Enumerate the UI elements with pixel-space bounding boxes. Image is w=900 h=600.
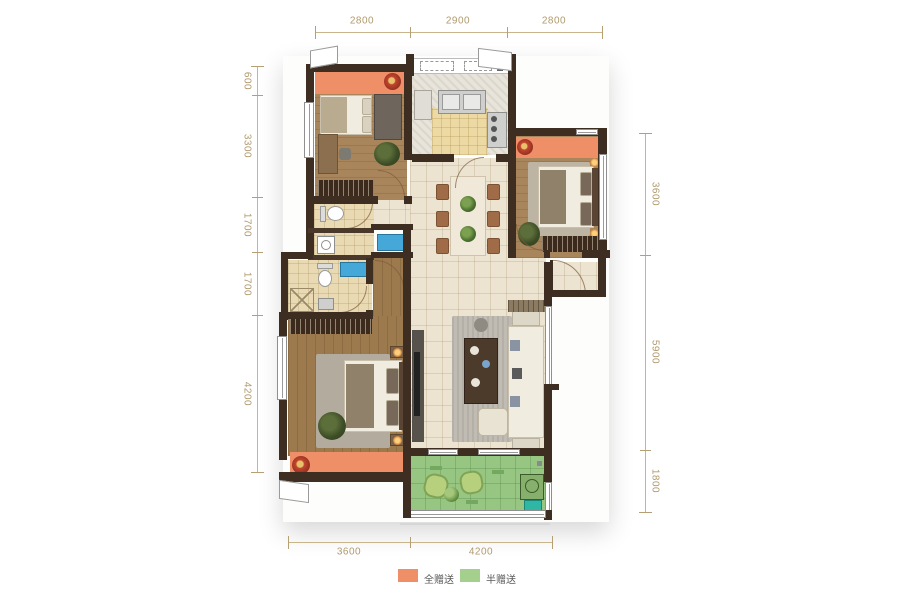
dim-tick — [288, 536, 289, 549]
burner — [491, 136, 497, 142]
armchair — [478, 408, 508, 436]
legend-swatch-half-gift — [460, 569, 480, 582]
dim-tick — [251, 472, 264, 473]
sofa-pillow — [510, 396, 520, 407]
sofa-pillow — [510, 340, 520, 351]
dim-label: 3300 — [242, 134, 253, 158]
wall — [404, 196, 412, 204]
wall — [403, 510, 411, 518]
wall — [403, 448, 411, 516]
vanity-sink — [318, 298, 334, 310]
window — [576, 129, 598, 135]
dim-tick — [410, 537, 411, 548]
stove-icon — [487, 112, 507, 148]
dim-tick — [602, 26, 603, 39]
ac-fan — [525, 479, 539, 493]
plant-icon — [460, 196, 476, 212]
burner — [491, 126, 497, 132]
dim-label: 4200 — [469, 547, 493, 558]
sink-basin — [463, 94, 481, 110]
floor-lamp — [474, 318, 488, 332]
tv-icon — [414, 352, 420, 416]
dim-line-left — [257, 66, 258, 472]
window — [277, 336, 287, 400]
pillow — [362, 98, 372, 115]
dining-chair — [487, 184, 500, 200]
bedroom2-desk — [318, 134, 338, 174]
plant-icon — [318, 412, 346, 440]
wall — [582, 250, 610, 258]
pillow — [580, 172, 592, 196]
dim-label: 3600 — [337, 547, 361, 558]
sofa-pillow — [512, 368, 522, 379]
blanket — [540, 170, 566, 224]
dim-tick — [639, 512, 652, 513]
balcony-window — [408, 510, 546, 518]
pillow — [386, 400, 399, 426]
bedroom2-dresser — [374, 94, 402, 140]
dim-tick — [410, 27, 411, 38]
window — [478, 449, 520, 455]
window — [599, 154, 607, 240]
dim-tick — [552, 536, 553, 549]
dim-tick — [639, 133, 652, 134]
toilet-tank — [317, 263, 333, 269]
dim-tick — [507, 27, 508, 38]
plant-icon — [460, 226, 476, 242]
dim-label: 3600 — [650, 182, 661, 206]
washer-drum — [321, 240, 331, 250]
wall — [281, 312, 373, 319]
legend-label-half-gift: 半赠送 — [486, 571, 516, 586]
wall — [544, 390, 552, 482]
wall — [544, 262, 552, 306]
dim-label: 1700 — [242, 272, 253, 296]
dim-label: 1700 — [242, 213, 253, 237]
dining-chair — [436, 184, 449, 200]
dim-tick — [252, 252, 263, 253]
window — [428, 449, 458, 455]
wall — [403, 224, 411, 258]
fridge — [414, 90, 432, 120]
ac-platform-icon — [420, 61, 454, 71]
dining-chair — [487, 211, 500, 227]
pillow — [386, 368, 399, 394]
bathtub-icon — [340, 262, 369, 277]
deck-plank — [430, 466, 442, 470]
wall — [598, 258, 606, 294]
wall — [308, 255, 374, 260]
wall — [406, 54, 414, 76]
dim-label: 5900 — [650, 340, 661, 364]
dim-tick — [252, 95, 263, 96]
window — [304, 102, 314, 158]
toilet-icon — [318, 270, 332, 287]
tableware — [482, 360, 490, 368]
pillow — [580, 202, 592, 226]
window — [545, 306, 552, 386]
dim-label: 600 — [242, 72, 253, 90]
dim-tick — [252, 197, 263, 198]
shoe-cabinet — [508, 300, 546, 312]
bay-window — [279, 480, 309, 503]
side-table — [512, 310, 540, 326]
wall — [404, 64, 412, 160]
dim-line-top — [315, 32, 602, 33]
toilet-icon — [327, 206, 344, 221]
sink-basin — [442, 94, 460, 110]
deck-plank — [492, 470, 504, 474]
wall — [366, 258, 373, 284]
dining-chair — [436, 211, 449, 227]
flower-icon — [384, 73, 401, 90]
tableware — [470, 346, 479, 355]
wall — [403, 448, 548, 456]
shower-icon — [290, 288, 314, 312]
wall — [308, 228, 374, 233]
dim-label: 4200 — [242, 382, 253, 406]
wall — [508, 250, 516, 258]
blanket — [321, 97, 347, 133]
window — [545, 482, 552, 512]
dim-label: 2900 — [446, 16, 470, 27]
dim-tick — [251, 66, 264, 67]
plant-icon — [374, 142, 400, 166]
wall — [306, 196, 378, 204]
master-wardrobe — [290, 318, 372, 334]
dim-label: 1800 — [650, 469, 661, 493]
dim-tick — [640, 255, 651, 256]
wall — [306, 196, 314, 258]
tableware — [471, 378, 480, 387]
dining-chair — [487, 238, 500, 254]
wall — [412, 154, 454, 162]
wall — [508, 74, 516, 134]
desk-chair — [339, 148, 351, 160]
wall — [544, 250, 550, 258]
flower-icon — [517, 139, 533, 155]
deck-plank — [466, 500, 478, 504]
wall — [403, 258, 411, 456]
wall — [508, 128, 516, 258]
dim-label: 2800 — [350, 16, 374, 27]
pillow — [362, 116, 372, 133]
wall — [281, 252, 288, 320]
kitchen-counter — [432, 108, 488, 155]
lamp-icon — [393, 348, 402, 357]
dining-table — [450, 176, 486, 256]
dim-tick — [640, 450, 651, 451]
blanket — [346, 364, 374, 428]
dim-tick — [252, 315, 263, 316]
dining-chair — [436, 238, 449, 254]
dim-label: 2800 — [542, 16, 566, 27]
coffee-table — [464, 338, 498, 404]
drain-icon — [537, 461, 542, 466]
legend-label-full-gift: 全赠送 — [424, 571, 454, 586]
dim-tick — [315, 26, 316, 39]
dim-line-right — [645, 133, 646, 512]
wall — [548, 290, 606, 297]
floorplan-canvas: 2800 2900 2800 600 3300 1700 1700 4200 3… — [0, 0, 900, 600]
balcony-table — [444, 487, 459, 502]
legend-swatch-full-gift — [398, 569, 418, 582]
wall — [279, 472, 411, 482]
bay-window — [478, 48, 512, 71]
toilet-tank — [320, 206, 326, 222]
burner — [491, 116, 497, 122]
balcony-sill-line — [400, 523, 550, 525]
lamp-icon — [393, 436, 402, 445]
dim-line-bottom — [288, 542, 552, 543]
